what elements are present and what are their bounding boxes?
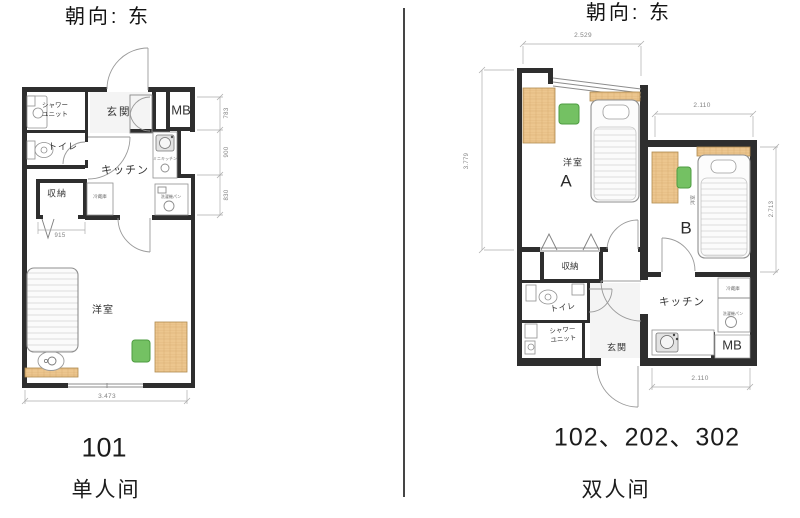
left-label-bedroom: 洋室 bbox=[92, 306, 114, 316]
left-dim-right-bottom: 830 bbox=[224, 190, 230, 201]
right-label-storage: 収納 bbox=[561, 262, 578, 271]
right-label-room-a: A bbox=[560, 173, 571, 190]
right-label-room-a-type: 洋室 bbox=[563, 159, 583, 168]
left-dim-bottom-width: 3.473 bbox=[98, 394, 116, 401]
right-dim-bottom-width: 2.110 bbox=[691, 376, 708, 383]
floorplan-canvas: 朝向: 东 シャワーユニット トイレ 玄関 MB キッチン 収納 冷蔵庫 ミニキ… bbox=[0, 0, 800, 518]
left-label-storage: 収納 bbox=[47, 190, 67, 199]
right-label-kitchen: キッチン bbox=[659, 297, 705, 308]
left-unit-number: 101 bbox=[81, 435, 126, 462]
room-a-chair bbox=[559, 104, 579, 124]
left-mini-kitchen-fixture bbox=[153, 132, 177, 178]
right-dim-room-b-width: 2.110 bbox=[693, 103, 710, 110]
left-plan-title: 朝向: 东 bbox=[65, 7, 151, 27]
left-label-fridge: 冷蔵庫 bbox=[93, 195, 107, 200]
left-label-toilet: トイレ bbox=[48, 143, 78, 152]
divider-line bbox=[403, 8, 405, 497]
right-label-room-b: B bbox=[680, 220, 691, 237]
right-label-fridge: 冷蔵庫 bbox=[726, 287, 740, 292]
left-dim-right-middle: 900 bbox=[224, 147, 230, 158]
left-dim-right-top: 783 bbox=[224, 108, 230, 119]
right-dim-left-height: 3.779 bbox=[464, 153, 470, 170]
right-label-meter-box: MB bbox=[722, 339, 742, 352]
room-b-desk bbox=[652, 152, 678, 203]
left-dim-storage-width: 915 bbox=[55, 233, 66, 239]
right-plan-title: 朝向: 东 bbox=[586, 3, 672, 23]
left-label-entrance: 玄関 bbox=[107, 107, 132, 118]
right-room-type: 双人间 bbox=[582, 480, 651, 501]
left-window bbox=[68, 383, 143, 388]
right-kitchen-counter bbox=[652, 330, 714, 355]
right-label-room-b-type: 洋室 bbox=[692, 195, 697, 205]
right-label-entrance: 玄関 bbox=[607, 344, 627, 353]
left-label-meter-box: MB bbox=[171, 104, 191, 117]
left-washer-pan-fixture bbox=[155, 184, 188, 215]
left-bed bbox=[27, 268, 78, 352]
right-unit-numbers: 102、202、302 bbox=[554, 426, 740, 451]
room-a-bed bbox=[590, 92, 640, 202]
left-chair bbox=[132, 340, 150, 362]
left-label-washer-pan: 洗濯機パン bbox=[161, 195, 181, 199]
right-shower-fixture bbox=[525, 324, 537, 354]
right-label-shower: シャワーユニット bbox=[547, 325, 579, 346]
left-label-kitchen: キッチン bbox=[101, 166, 149, 177]
right-toilet-fixture bbox=[526, 284, 584, 304]
right-dim-top-width: 2.529 bbox=[574, 33, 592, 40]
right-label-washer-pan: 洗濯機パン bbox=[723, 312, 743, 316]
left-label-shower: シャワーユニット bbox=[40, 102, 70, 120]
room-b-bed bbox=[697, 147, 750, 258]
left-label-mini-kitchen: ミニキッチン bbox=[153, 157, 177, 161]
left-side-table bbox=[25, 352, 78, 378]
room-a-desk bbox=[523, 88, 555, 143]
left-room-type: 单人间 bbox=[72, 480, 141, 501]
right-dim-room-b-height: 2.713 bbox=[769, 201, 775, 218]
room-b-chair bbox=[677, 167, 691, 188]
left-desk bbox=[155, 322, 187, 372]
